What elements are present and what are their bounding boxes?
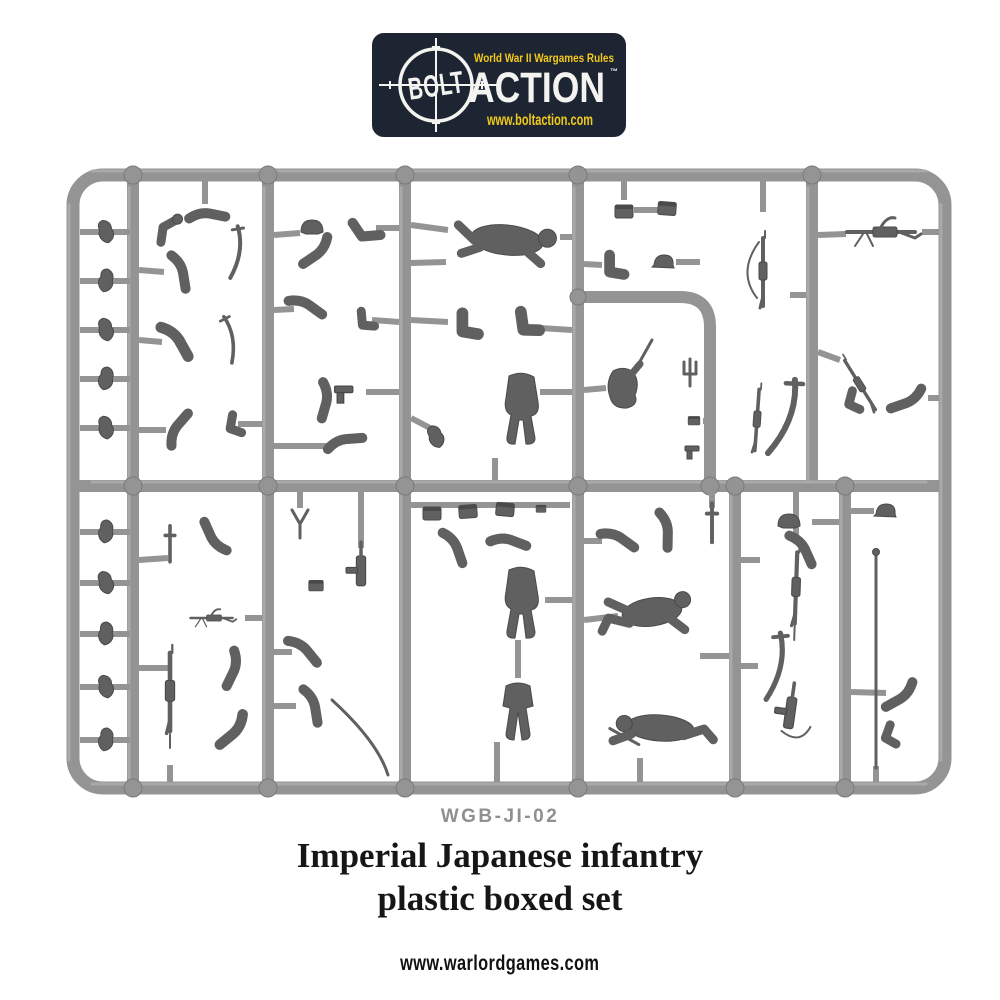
sprue-part-katana [762,632,788,701]
sprue-cell-bottom-prone [584,492,729,782]
sprue-part-fork [684,359,696,386]
sprue-part-pistol [335,386,353,403]
sprue-part-pouch [423,507,441,520]
sprue-part-smg-slung [771,681,816,739]
sprue-part-boot [848,391,864,410]
sprue-part-puttee-leg [462,313,478,334]
sprue-part-pouch [658,201,677,215]
sprue-part-cap [874,504,896,517]
sprue-part-arm [204,519,226,553]
sprue-part-rifle-bayonet [790,545,802,640]
sprue-part-head [97,727,116,752]
sprue-cell-bottom-weapons [741,492,839,739]
sprue-part-legs-figure [503,683,533,740]
product-title-line2: plastic boxed set [0,877,1000,920]
sprue-part-rifle [751,383,763,453]
sprue-part-torso-figure [505,567,538,638]
sprue-part-rifle-bayonet [165,645,174,748]
product-title: Imperial Japanese infantry plastic boxed… [0,834,1000,920]
sprue-part-helmet [778,514,800,528]
sprue-part-arm [161,322,188,361]
sprue-part-arm [789,533,811,567]
sprue-part-smg [346,542,366,586]
sprue-part-pouch [459,504,478,518]
sprue-part-pouch [309,580,323,590]
sprue-part-sword [227,226,243,279]
sprue-part-mg [190,609,236,627]
sprue-part-arm [889,389,922,409]
product-photo-page: BOLT World War II Wargames Rules ACTION … [0,0,1000,1000]
sprue-part-crawling-figure [609,712,715,750]
sprue-part-arm [601,523,635,558]
sprue-part-arm [307,382,338,418]
sprue-part-sling [332,700,388,775]
sprue-part-pistol [685,446,699,459]
sprue-part-pouch [688,416,700,424]
sprue-cell-bottom-pole [851,504,917,782]
sprue-part-head [96,219,115,244]
sprue-part-head [97,317,115,342]
product-title-line1: Imperial Japanese infantry [0,834,1000,877]
sprue-part-arm [162,413,198,445]
sprue-part-pouch [615,205,633,218]
sprue-cell-top-arms-1 [139,181,262,446]
sprue-cell-top-figures [411,220,572,480]
sprue-part-head [97,519,115,544]
sprue-part-katana [764,378,804,457]
sprue-part-lmg [847,218,921,246]
sprue-cell-bottom-rifles [139,519,262,782]
product-code: WGB-JI-02 [0,806,1000,828]
sprue-part-arm [155,213,187,242]
sprue-part-arm [212,714,250,744]
sprue-cell-top-weapons [818,218,939,413]
sprue-part-helmet [301,220,323,234]
sprue-part-cap [652,255,674,268]
sprue-part-arm [443,531,463,564]
sprue-cell-top-arms-2 [274,215,399,454]
sprue-cell-top-equipment [584,181,806,459]
sprue-part-officer-figure [608,340,652,408]
sprue-cell-bottom-figures [411,502,572,782]
sprue-part-arm [490,527,526,559]
sprue-part-standing-figure [505,373,538,444]
sprue-part-arm [651,512,676,547]
sprue-part-flag-pole [873,549,880,769]
sprue-part-arm [301,689,321,722]
footer: www.warlordgames.com [0,952,1000,976]
sprue-part-crawling-figure [455,220,557,265]
sprue-part-head [97,674,115,699]
sprue-part-arm [297,237,333,264]
sprue-part-arm [189,203,225,232]
sprue-cell-bottom-smg [274,492,388,775]
sprue-part-bipod [292,510,308,538]
sprue-part-rifle-slung [747,231,767,308]
sprue-part-pouch [496,502,515,517]
sprue-part-buckle [536,505,546,512]
sprue-part-head [97,621,114,646]
sprue-part-head [97,415,114,440]
sprue-part-boot [885,725,902,744]
footer-url: www.warlordgames.com [400,952,599,976]
sprue-part-arm [288,634,317,670]
sprue-part-sword [219,316,238,364]
sprue-part-head [96,570,115,596]
sprue-part-dagger [707,503,717,542]
sprue-part-arm [214,651,248,686]
sprue-part-arm [328,432,362,454]
sprue-part-puttee-leg [521,310,539,333]
sprue-part-prone-figure [598,591,694,641]
sprue-part-head [97,268,116,293]
sprue-part-boot [610,255,624,274]
sprue-part-arm [169,255,189,288]
sprue-part-arm [881,682,916,707]
